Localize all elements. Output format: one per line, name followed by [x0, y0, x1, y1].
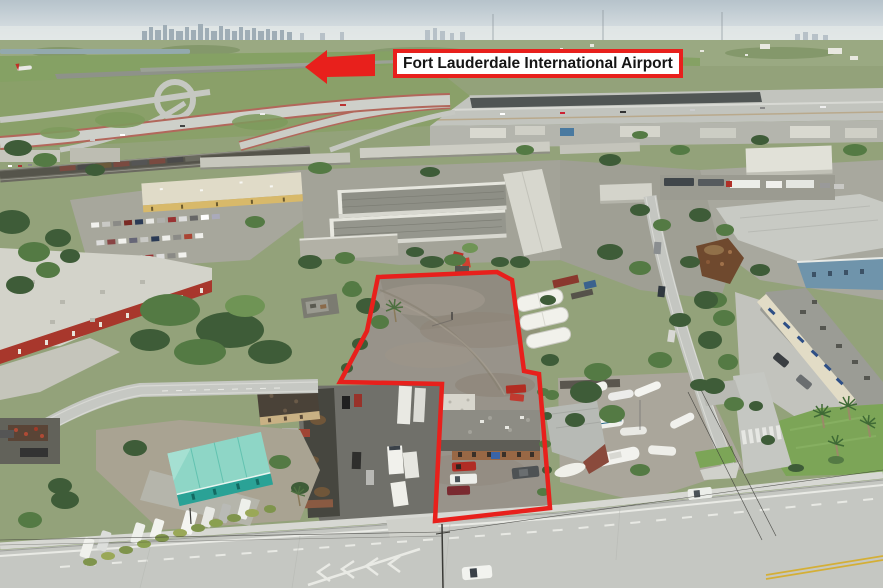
road-car-white	[462, 565, 493, 581]
pallet-yard	[0, 418, 60, 464]
water-strip	[0, 49, 190, 54]
truck-parking-east	[660, 175, 844, 200]
airport-label: Fort Lauderdale International Airport	[393, 49, 683, 78]
aerial-scene	[0, 0, 883, 588]
blue-building	[797, 258, 883, 290]
white-warehouse-topright	[746, 146, 833, 177]
blue-dumpster	[491, 452, 500, 459]
aerial-photo: Fort Lauderdale International Airport	[0, 0, 883, 588]
